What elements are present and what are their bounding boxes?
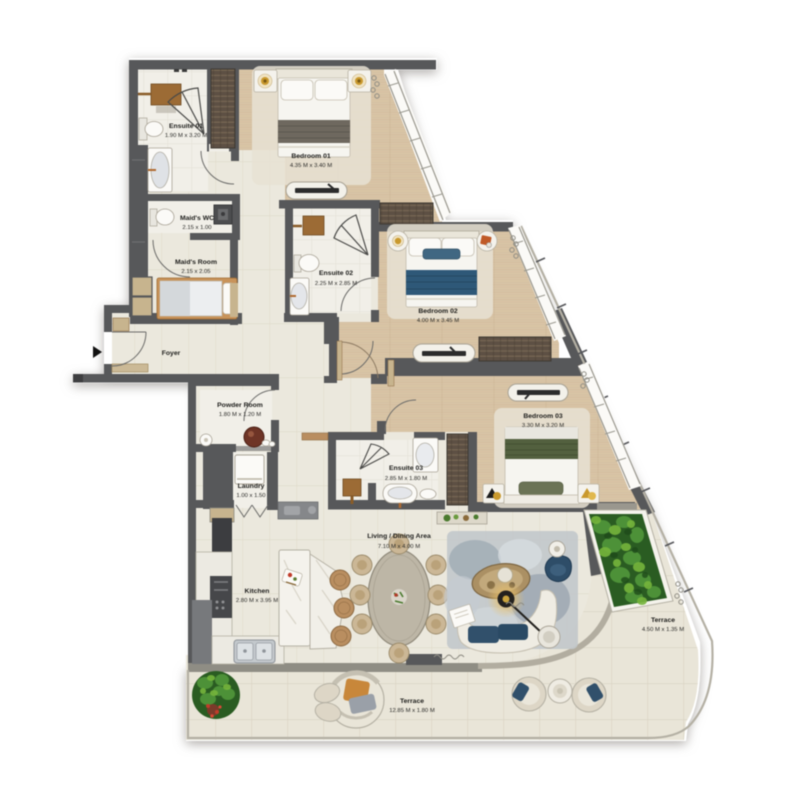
svg-text:1.90 M x 3.20 M: 1.90 M x 3.20 M (165, 133, 207, 139)
svg-text:Ensuite 03: Ensuite 03 (389, 465, 423, 472)
svg-text:2.80 M x 3.95 M: 2.80 M x 3.95 M (236, 598, 278, 604)
svg-text:2.25 M x 2.85 M: 2.25 M x 2.85 M (315, 281, 357, 287)
svg-text:4.35 M x 3.40 M: 4.35 M x 3.40 M (290, 163, 332, 169)
svg-text:Terrace: Terrace (651, 617, 675, 624)
svg-text:Bedroom 03: Bedroom 03 (523, 413, 563, 420)
svg-text:Maid's Room: Maid's Room (175, 259, 217, 266)
svg-text:7.10 M x 4.00 M: 7.10 M x 4.00 M (378, 544, 420, 550)
svg-text:Bedroom 01: Bedroom 01 (291, 153, 331, 160)
svg-text:4.50 M x 1.35 M: 4.50 M x 1.35 M (642, 627, 684, 633)
svg-text:4.00 M x 3.45 M: 4.00 M x 3.45 M (417, 318, 459, 324)
svg-text:Powder Room: Powder Room (217, 402, 263, 409)
svg-text:Ensuite 01: Ensuite 01 (169, 123, 203, 130)
svg-text:Maid's WC: Maid's WC (180, 215, 214, 222)
svg-text:Laundry: Laundry (238, 483, 265, 490)
svg-text:2.85 M x 1.80 M: 2.85 M x 1.80 M (385, 476, 427, 482)
svg-text:2.15 x 1.00: 2.15 x 1.00 (182, 225, 212, 231)
svg-text:Living / Dining Area: Living / Dining Area (367, 533, 431, 540)
svg-text:Terrace: Terrace (400, 698, 424, 705)
svg-text:Bedroom 02: Bedroom 02 (418, 308, 458, 315)
svg-text:Foyer: Foyer (162, 350, 181, 357)
svg-text:12.85 M x 1.80 M: 12.85 M x 1.80 M (389, 708, 435, 714)
svg-text:3.30 M x 3.20 M: 3.30 M x 3.20 M (522, 423, 564, 429)
svg-text:2.15 x 2.05: 2.15 x 2.05 (181, 269, 211, 275)
svg-text:1.80 M x 1.20 M: 1.80 M x 1.20 M (219, 412, 261, 418)
svg-text:1.00 x 1.50: 1.00 x 1.50 (236, 493, 266, 499)
svg-text:Kitchen: Kitchen (245, 588, 270, 595)
svg-text:Ensuite 02: Ensuite 02 (319, 270, 353, 277)
